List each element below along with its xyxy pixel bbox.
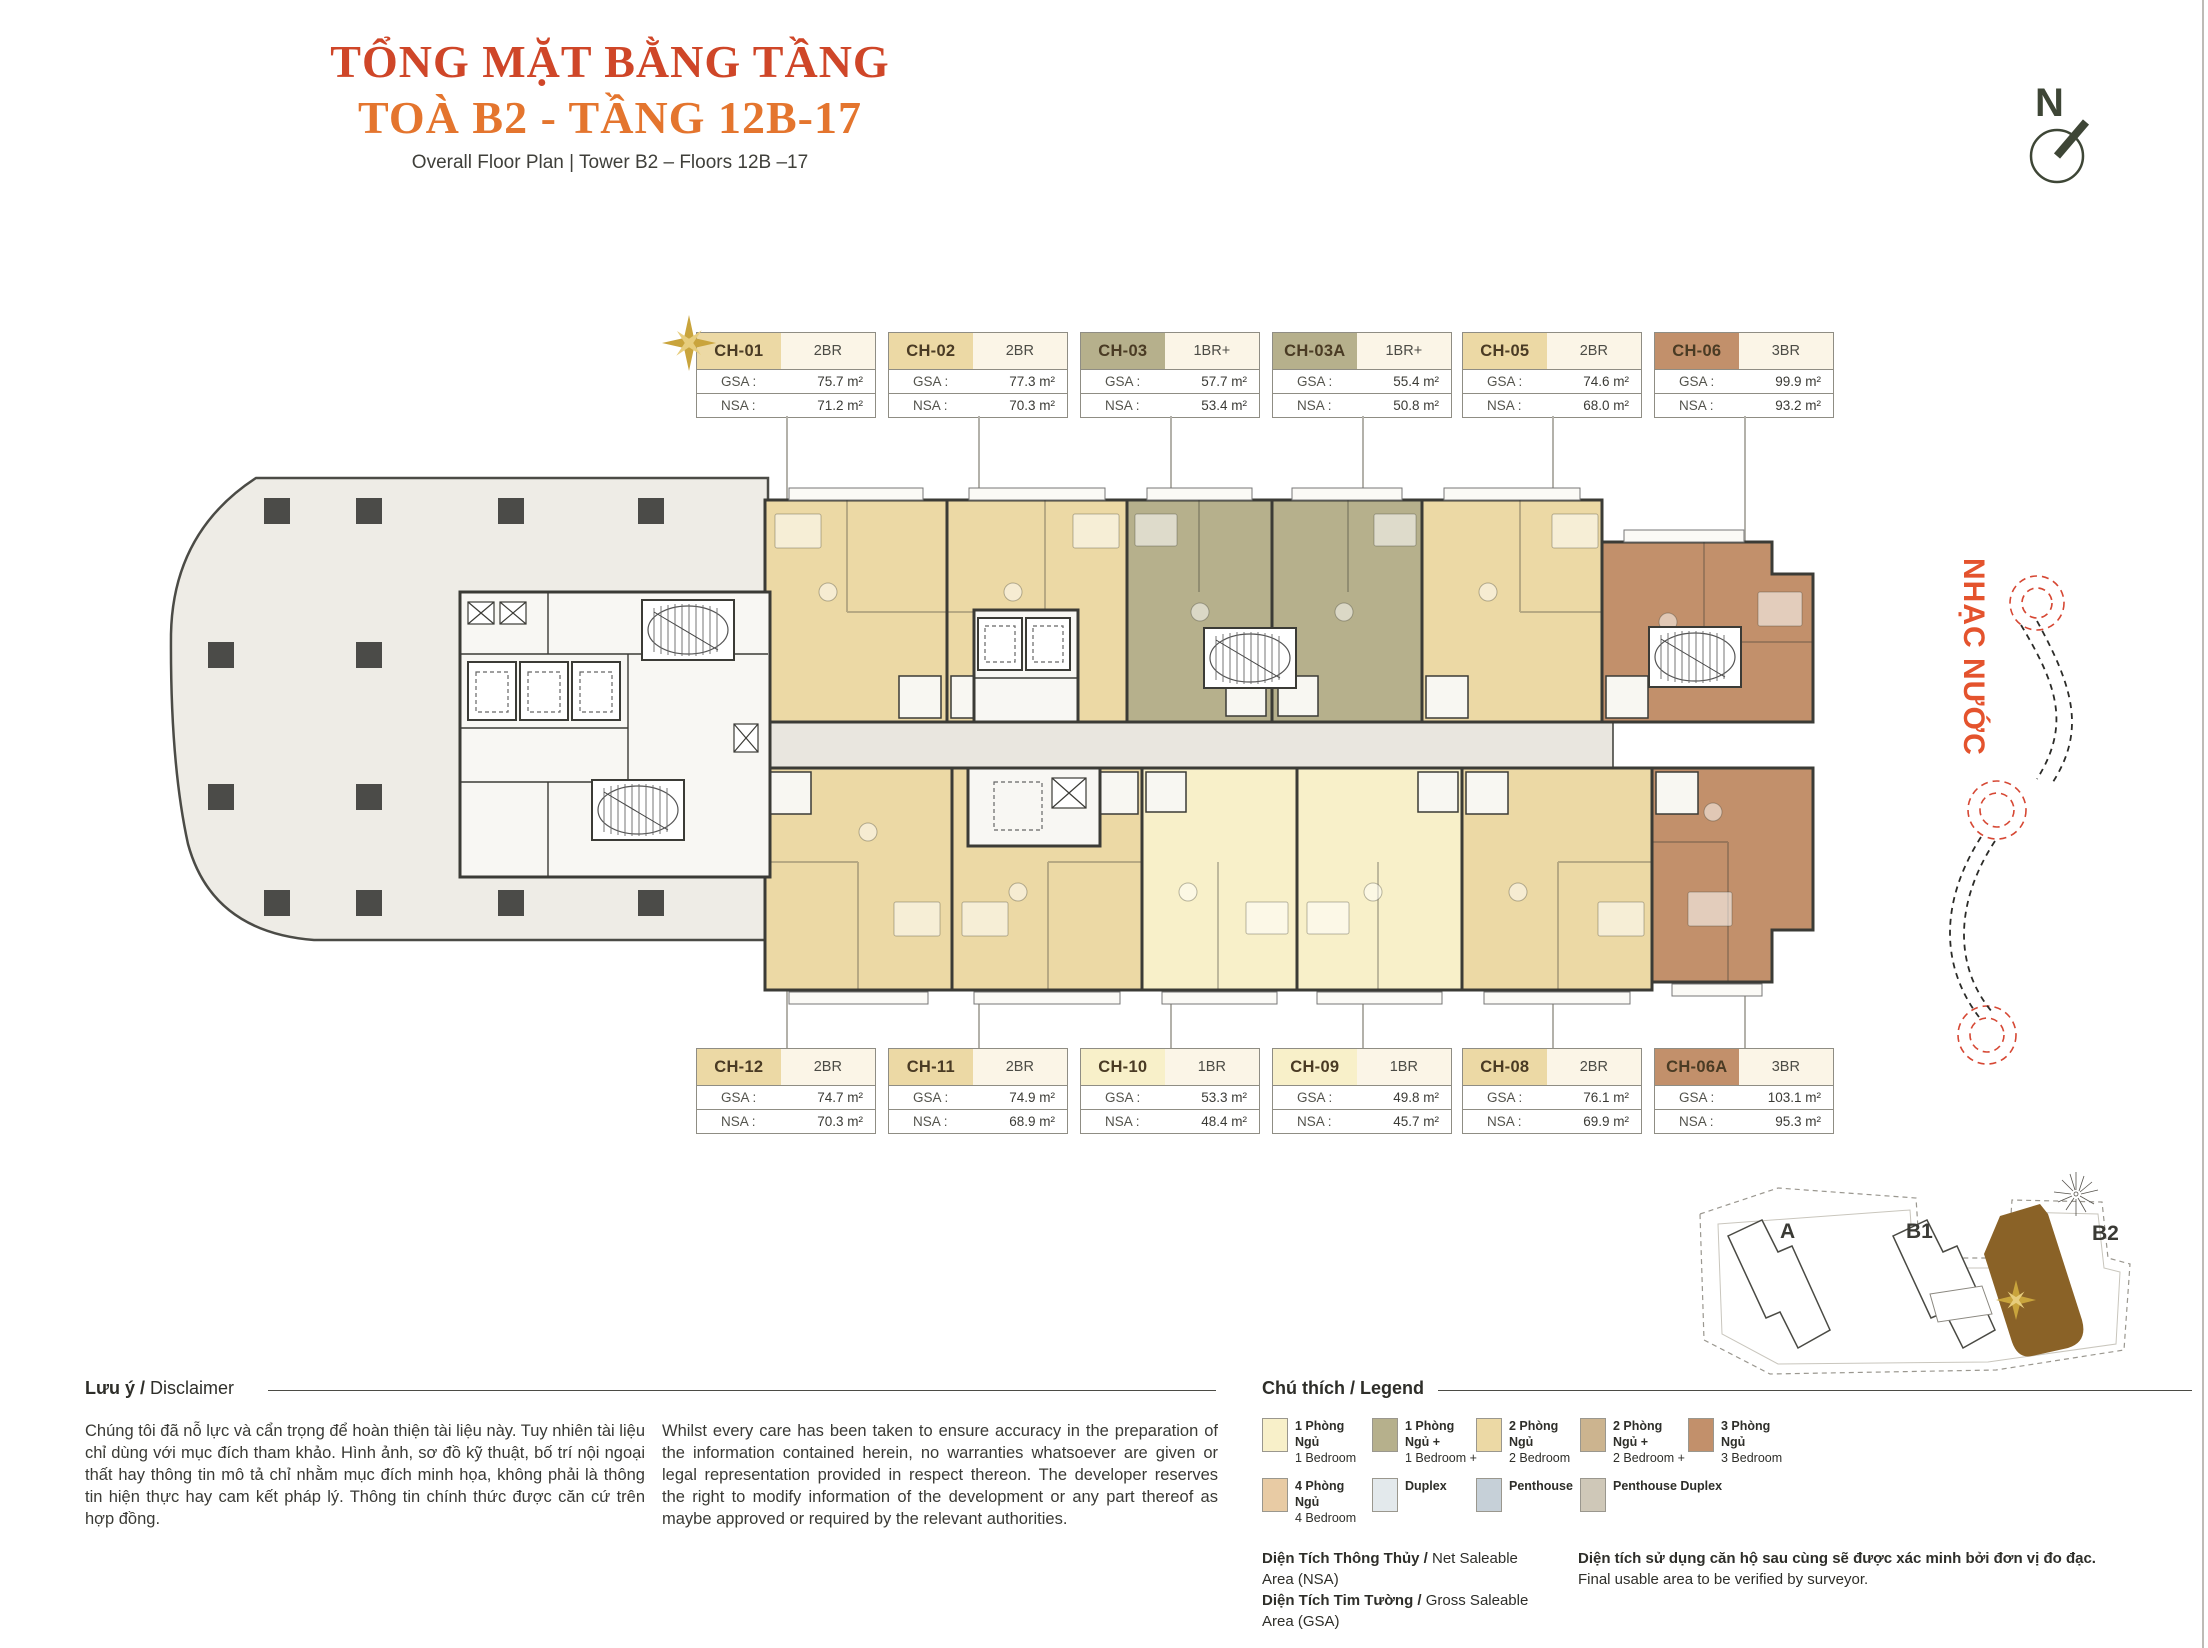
legend-swatch xyxy=(1262,1478,1288,1512)
unit-card-ch-09: CH-091BR GSA :49.8 m² NSA :45.7 m² xyxy=(1272,1048,1452,1134)
legend-swatch xyxy=(1476,1478,1502,1512)
unit-type: 2BR xyxy=(973,333,1067,369)
nsa-value: 93.2 m² xyxy=(1775,398,1821,413)
core-mid-lifts xyxy=(974,610,1078,722)
nsa-value: 70.3 m² xyxy=(1009,398,1055,413)
unit-ch-12 xyxy=(765,768,952,1004)
legend-swatch xyxy=(1580,1418,1606,1452)
nsa-label: NSA : xyxy=(1105,1114,1140,1129)
nsa-value: 45.7 m² xyxy=(1393,1114,1439,1129)
title-line2: TOÀ B2 - TẦNG 12B-17 xyxy=(330,90,890,146)
gsa-label: GSA : xyxy=(721,1090,756,1105)
nsa-label: NSA : xyxy=(721,398,756,413)
gsa-value: 74.6 m² xyxy=(1583,374,1629,389)
unit-id: CH-06A xyxy=(1655,1049,1739,1085)
north-label: N xyxy=(2035,81,2064,125)
unit-ch-08 xyxy=(1462,768,1652,1004)
unit-id: CH-10 xyxy=(1081,1049,1165,1085)
water-feature-curves xyxy=(1945,565,2205,1085)
unit-card-ch-11: CH-112BR GSA :74.9 m² NSA :68.9 m² xyxy=(888,1048,1068,1134)
unit-type: 2BR xyxy=(1547,333,1641,369)
legend-item-1br-plus: 1 Phòng Ngủ +1 Bedroom + xyxy=(1372,1418,1480,1466)
nsa-value: 70.3 m² xyxy=(817,1114,863,1129)
nsa-label: NSA : xyxy=(1297,398,1332,413)
unit-type: 1BR xyxy=(1357,1049,1451,1085)
unit-ch-09 xyxy=(1297,768,1462,1004)
highlight-star-icon xyxy=(658,312,720,374)
core-mid-lower xyxy=(968,768,1100,846)
unit-card-ch-06: CH-063BR GSA :99.9 m² NSA :93.2 m² xyxy=(1654,332,1834,418)
gsa-label: GSA : xyxy=(1679,374,1714,389)
unit-type: 2BR xyxy=(781,333,875,369)
disclaimer-rule xyxy=(268,1390,1216,1391)
unit-card-ch-03: CH-031BR+ GSA :57.7 m² NSA :53.4 m² xyxy=(1080,332,1260,418)
gsa-value: 57.7 m² xyxy=(1201,374,1247,389)
unit-ch-01 xyxy=(765,488,947,722)
page-subtitle: Overall Floor Plan | Tower B2 – Floors 1… xyxy=(330,152,890,174)
tower-a-label: A xyxy=(1780,1220,1795,1243)
nsa-label: NSA : xyxy=(1679,1114,1714,1129)
unit-ch-10 xyxy=(1142,768,1297,1004)
gsa-label: GSA : xyxy=(721,374,756,389)
unit-card-ch-08: CH-082BR GSA :76.1 m² NSA :69.9 m² xyxy=(1462,1048,1642,1134)
disclaimer-text-en: Whilst every care has been taken to ensu… xyxy=(662,1420,1218,1531)
unit-id: CH-03A xyxy=(1273,333,1357,369)
gsa-label: GSA : xyxy=(913,374,948,389)
core-left xyxy=(460,592,770,877)
unit-id: CH-11 xyxy=(889,1049,973,1085)
gsa-value: 49.8 m² xyxy=(1393,1090,1439,1105)
legend-swatch xyxy=(1580,1478,1606,1512)
unit-card-ch-01: CH-012BR GSA :75.7 m² NSA :71.2 m² xyxy=(696,332,876,418)
legend-item-penthouse-duplex: Penthouse Duplex xyxy=(1580,1478,1740,1512)
gsa-value: 74.9 m² xyxy=(1009,1090,1055,1105)
legend-rule xyxy=(1438,1390,2192,1391)
gsa-label: GSA : xyxy=(1297,1090,1332,1105)
tower-b1-label: B1 xyxy=(1906,1220,1933,1243)
nsa-label: NSA : xyxy=(1105,398,1140,413)
legend-heading: Chú thích / Legend xyxy=(1262,1378,1424,1399)
gsa-value: 75.7 m² xyxy=(817,374,863,389)
north-compass-icon: N xyxy=(2005,72,2115,192)
title-line1: TỔNG MẶT BẰNG TẦNG xyxy=(330,34,890,90)
stair-icon xyxy=(592,780,684,840)
legend-swatch xyxy=(1476,1418,1502,1452)
gsa-value: 103.1 m² xyxy=(1768,1090,1821,1105)
legend-item-4br: 4 Phòng Ngủ4 Bedroom xyxy=(1262,1478,1370,1526)
gsa-value: 55.4 m² xyxy=(1393,374,1439,389)
legend-swatch xyxy=(1688,1418,1714,1452)
unit-card-ch-02: CH-022BR GSA :77.3 m² NSA :70.3 m² xyxy=(888,332,1068,418)
gsa-label: GSA : xyxy=(913,1090,948,1105)
disclaimer-heading: Lưu ý / Disclaimer xyxy=(85,1378,234,1399)
legend-item-duplex: Duplex xyxy=(1372,1478,1480,1512)
floor-plan-page: TỔNG MẶT BẰNG TẦNG TOÀ B2 - TẦNG 12B-17 … xyxy=(0,0,2208,1648)
corridor xyxy=(728,722,1613,768)
nsa-value: 50.8 m² xyxy=(1393,398,1439,413)
unit-type: 1BR+ xyxy=(1357,333,1451,369)
gsa-value: 53.3 m² xyxy=(1201,1090,1247,1105)
unit-type: 2BR xyxy=(1547,1049,1641,1085)
gsa-label: GSA : xyxy=(1105,1090,1140,1105)
site-map: A B1 B2 xyxy=(1678,1172,2158,1387)
unit-ch-05 xyxy=(1422,488,1602,722)
nsa-value: 53.4 m² xyxy=(1201,398,1247,413)
unit-type: 2BR xyxy=(973,1049,1067,1085)
gsa-value: 76.1 m² xyxy=(1583,1090,1629,1105)
unit-id: CH-09 xyxy=(1273,1049,1357,1085)
unit-type: 3BR xyxy=(1739,333,1833,369)
legend-swatch xyxy=(1372,1418,1398,1452)
gsa-label: GSA : xyxy=(1679,1090,1714,1105)
nsa-label: NSA : xyxy=(913,1114,948,1129)
floor-plan-drawing xyxy=(168,462,1818,1037)
nsa-label: NSA : xyxy=(1487,398,1522,413)
gsa-label: GSA : xyxy=(1487,1090,1522,1105)
nsa-value: 48.4 m² xyxy=(1201,1114,1247,1129)
nsa-label: NSA : xyxy=(913,398,948,413)
gsa-label: GSA : xyxy=(1297,374,1332,389)
gsa-label: GSA : xyxy=(1487,374,1522,389)
legend-item-3br: 3 Phòng Ngủ3 Bedroom xyxy=(1688,1418,1796,1466)
unit-id: CH-05 xyxy=(1463,333,1547,369)
unit-card-ch-10: CH-101BR GSA :53.3 m² NSA :48.4 m² xyxy=(1080,1048,1260,1134)
unit-ch-06a xyxy=(1652,768,1813,996)
unit-id: CH-12 xyxy=(697,1049,781,1085)
unit-id: CH-08 xyxy=(1463,1049,1547,1085)
stair-icon xyxy=(1649,627,1741,687)
nsa-label: NSA : xyxy=(1487,1114,1522,1129)
nsa-label: NSA : xyxy=(721,1114,756,1129)
gsa-label: GSA : xyxy=(1105,374,1140,389)
starburst-icon xyxy=(2054,1172,2098,1216)
tower-b2-label: B2 xyxy=(2092,1222,2119,1245)
elevator-bank-icon xyxy=(468,662,620,720)
legend-item-2br: 2 Phòng Ngủ2 Bedroom xyxy=(1476,1418,1584,1466)
legend-heading-en: Legend xyxy=(1355,1378,1424,1398)
disclaimer-heading-vi: Lưu ý / xyxy=(85,1378,145,1398)
disclaimer-text-vi: Chúng tôi đã nỗ lực và cẩn trọng để hoàn… xyxy=(85,1420,645,1531)
legend-item-1br: 1 Phòng Ngủ1 Bedroom xyxy=(1262,1418,1370,1466)
legend-heading-vi: Chú thích / xyxy=(1262,1378,1355,1398)
gsa-value: 99.9 m² xyxy=(1775,374,1821,389)
nsa-value: 68.0 m² xyxy=(1583,398,1629,413)
unit-id: CH-03 xyxy=(1081,333,1165,369)
unit-type: 2BR xyxy=(781,1049,875,1085)
nsa-value: 95.3 m² xyxy=(1775,1114,1821,1129)
legend-swatch xyxy=(1262,1418,1288,1452)
unit-type: 3BR xyxy=(1739,1049,1833,1085)
gsa-value: 77.3 m² xyxy=(1009,374,1055,389)
nsa-label: NSA : xyxy=(1297,1114,1332,1129)
legend-item-penthouse: Penthouse xyxy=(1476,1478,1584,1512)
nsa-label: NSA : xyxy=(1679,398,1714,413)
unit-card-ch-05: CH-052BR GSA :74.6 m² NSA :68.0 m² xyxy=(1462,332,1642,418)
page-title: TỔNG MẶT BẰNG TẦNG TOÀ B2 - TẦNG 12B-17 xyxy=(330,34,890,146)
area-verification-note: Diện tích sử dụng căn hộ sau cùng sẽ đượ… xyxy=(1578,1548,2198,1590)
unit-card-ch-06a: CH-06A3BR GSA :103.1 m² NSA :95.3 m² xyxy=(1654,1048,1834,1134)
disclaimer-heading-en: Disclaimer xyxy=(145,1378,234,1398)
area-definitions: Diện Tích Thông Thủy / Net Saleable Area… xyxy=(1262,1548,1552,1632)
gsa-value: 74.7 m² xyxy=(817,1090,863,1105)
nsa-value: 69.9 m² xyxy=(1583,1114,1629,1129)
stair-icon xyxy=(1204,628,1296,688)
unit-type: 1BR+ xyxy=(1165,333,1259,369)
unit-id: CH-02 xyxy=(889,333,973,369)
unit-card-ch-03a: CH-03A1BR+ GSA :55.4 m² NSA :50.8 m² xyxy=(1272,332,1452,418)
unit-card-ch-12: CH-122BR GSA :74.7 m² NSA :70.3 m² xyxy=(696,1048,876,1134)
legend-item-2br-plus: 2 Phòng Ngủ +2 Bedroom + xyxy=(1580,1418,1688,1466)
unit-id: CH-06 xyxy=(1655,333,1739,369)
legend-swatch xyxy=(1372,1478,1398,1512)
stair-icon xyxy=(642,600,734,660)
nsa-value: 68.9 m² xyxy=(1009,1114,1055,1129)
unit-type: 1BR xyxy=(1165,1049,1259,1085)
nsa-value: 71.2 m² xyxy=(817,398,863,413)
